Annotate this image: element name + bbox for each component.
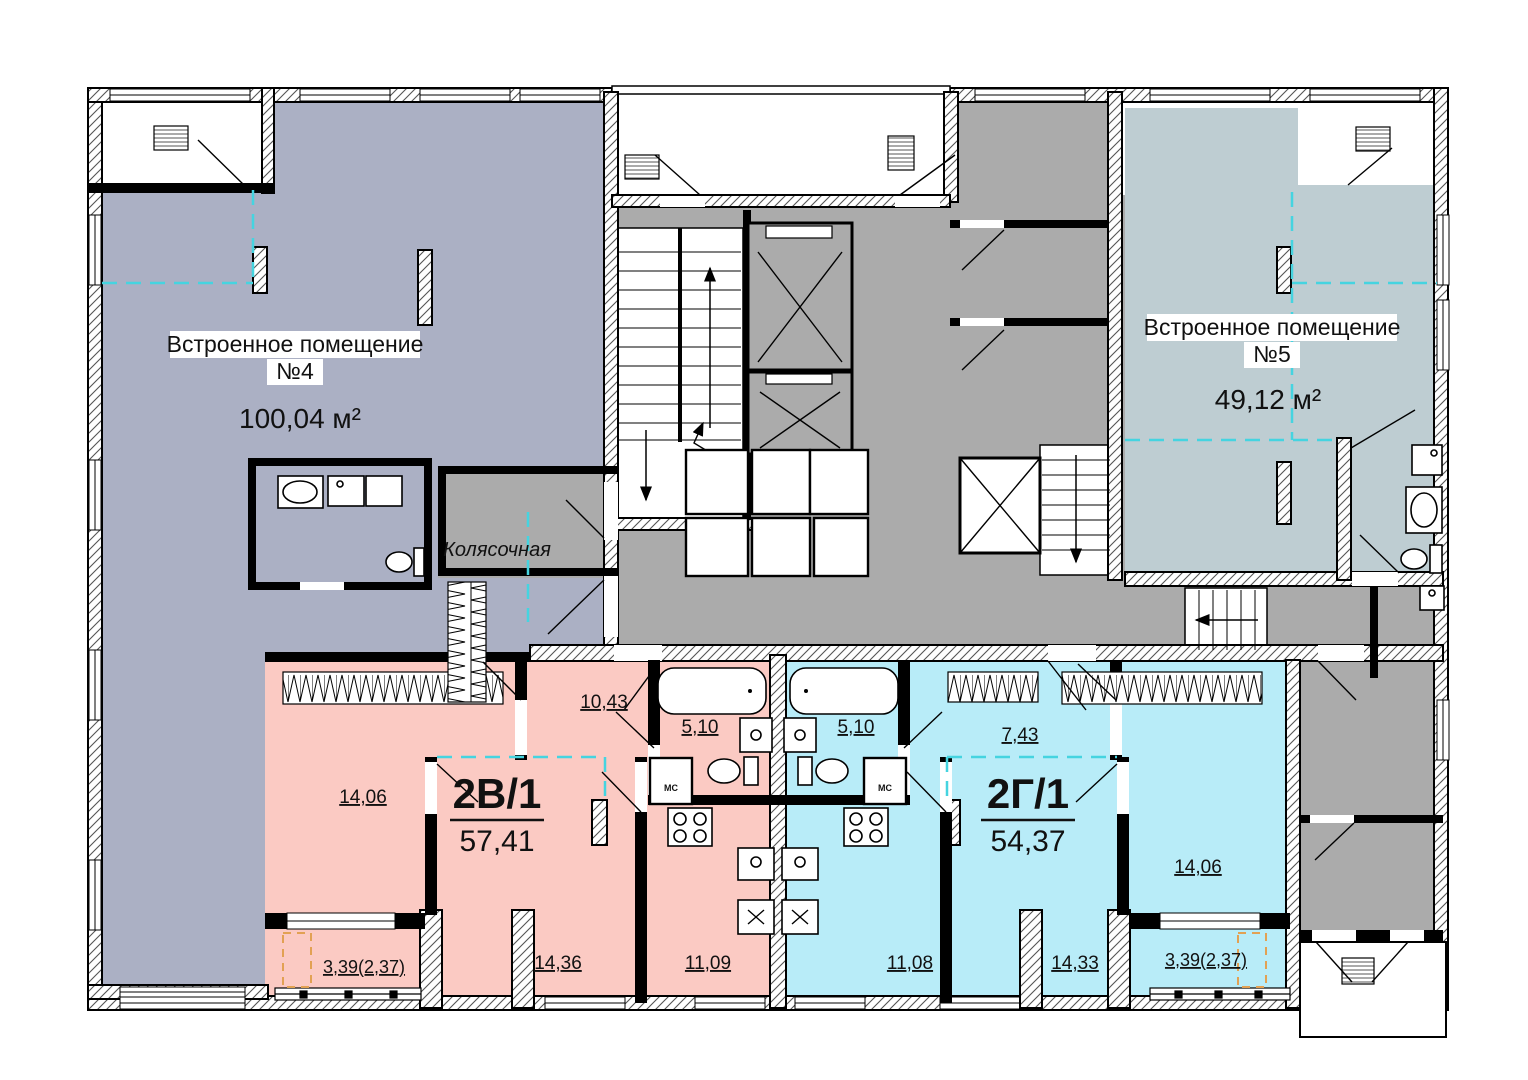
floor-plan-page: Встроенное помещение №4 100,04 м² Встрое… [0,0,1528,1080]
vent-icon [625,155,659,179]
bottom-right-balcony [1300,942,1446,1037]
stroller-room-fill [438,472,612,578]
apt-2g1-total-area: 54,37 [990,825,1065,858]
shaft [960,458,1040,553]
apt-2b1-total-area: 57,41 [459,825,534,858]
apt-2g1-code: 2Г/1 [987,770,1069,817]
stroller-room-label: Колясочная [443,539,551,561]
room-label-bedroom-right: 14,06 [1174,857,1222,878]
mailboxes [686,450,868,576]
vent-icon [1342,958,1374,984]
room-label-living-right: 14,33 [1051,953,1099,974]
top-rooms-fill [950,98,1108,198]
unit4-area: 100,04 м² [239,403,361,434]
mc-label-left: МС [664,783,678,793]
unit4-number: №4 [276,358,314,384]
floor-plan: Встроенное помещение №4 100,04 м² Встрое… [0,0,1528,1080]
vent-icon [888,136,914,170]
mc-label-right: МС [878,783,892,793]
room-label-kitchen-left: 11,09 [685,953,731,974]
toilet-icon [708,759,740,783]
apt-2b1-code: 2В/1 [453,770,542,817]
toilet-icon [1430,545,1442,573]
elevator-1 [748,223,852,370]
room-label-bath-left: 5,10 [682,717,719,738]
unit5-number: №5 [1253,341,1290,367]
mc-box [864,758,906,804]
toilet-icon [816,759,848,783]
right-rooms-fill [1295,660,1443,935]
stove-icon [668,808,712,846]
sink-icon [1412,445,1442,475]
elevator-2 [748,372,852,454]
room-label-balcony-left: 3,39(2,37) [323,957,405,977]
unit5-name: Встроенное помещение [1144,314,1401,340]
unit4-name: Встроенное помещение [167,331,424,357]
room-label-balcony-right: 3,39(2,37) [1165,950,1247,970]
mc-box [650,758,692,804]
room-label-bedroom-left: 14,06 [339,787,387,808]
room-label-hall-left: 10,43 [580,692,628,713]
toilet-icon [414,548,424,576]
room-label-living-left: 14,36 [534,953,582,974]
vent-icon [154,126,188,150]
unit5-area: 49,12 м² [1215,384,1321,415]
room-label-hall-right: 7,43 [1002,725,1039,746]
stove-icon [844,808,888,846]
vent-icon [1356,127,1390,151]
room-label-kitchen-right: 11,08 [887,953,933,974]
room-label-bath-right: 5,10 [838,717,875,738]
